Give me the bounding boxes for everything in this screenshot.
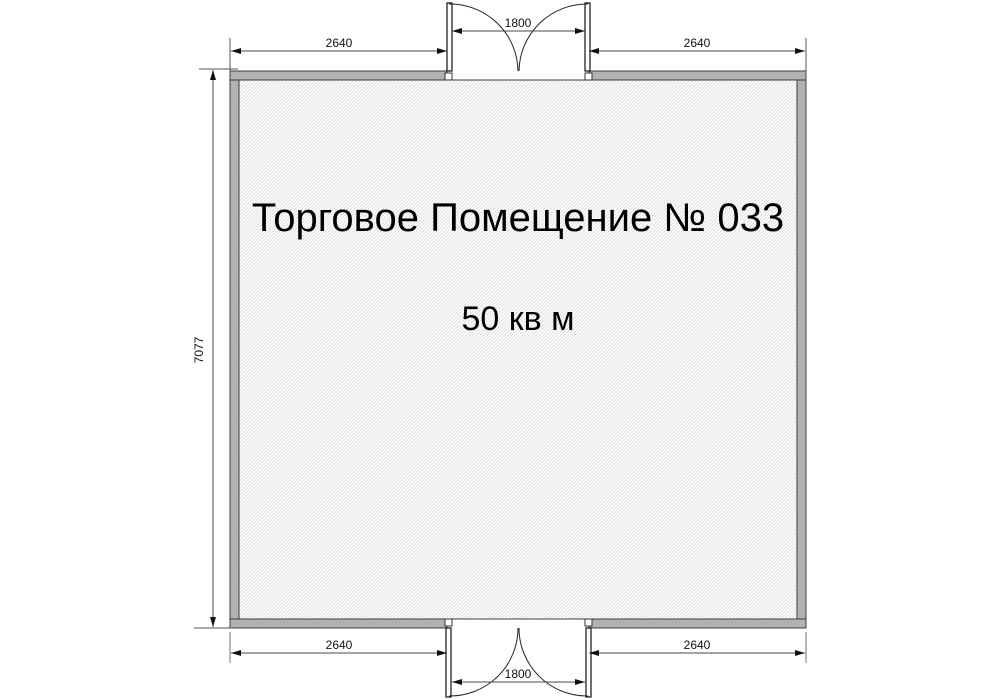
door-top [447,3,590,71]
door-jamb-bottom-left [445,619,452,626]
dim-label-top-door: 1800 [505,16,532,30]
dim-label-bottom-left: 2640 [326,638,353,652]
arrowhead [575,679,585,685]
room-title: Торговое Помещение № 033 [252,196,784,240]
arrowhead [452,679,462,685]
dim-label-top-right: 2640 [684,36,711,50]
door-leaf-top-right [585,3,590,71]
door-swing-arc-bottom-right [519,628,588,696]
door-swing-arc-top-right [519,4,588,71]
floor-plan-page: 2640 2640 1800 2640 2640 1800 7077 Торго… [0,0,1000,700]
door-swing-arc-bottom-left [449,628,518,696]
wall-top-right [589,71,806,80]
door-bottom [446,628,591,697]
dim-label-top-left: 2640 [326,36,353,50]
room-interior [239,80,797,619]
dim-label-bottom-door: 1800 [505,667,532,681]
dim-label-bottom-right: 2640 [684,638,711,652]
arrowhead [437,48,447,54]
door-jamb-top-right [585,73,592,80]
arrowhead [575,28,585,34]
door-leaf-top-left [447,3,452,71]
door-swing-arc-top-left [449,4,518,71]
door-leaf-bottom-left [446,628,451,697]
arrowhead [231,48,241,54]
arrowhead [210,617,216,627]
door-jamb-top-left [445,73,452,80]
door-leaf-bottom-right [586,628,591,697]
arrowhead [231,650,241,656]
wall-right [797,71,806,628]
arrowhead [210,70,216,80]
arrowhead [795,48,805,54]
dim-label-left-height: 7077 [192,336,206,363]
door-jamb-bottom-right [585,619,592,626]
arrowhead [795,650,805,656]
wall-bottom-right [589,619,806,628]
wall-left [230,71,239,628]
arrowhead [452,28,462,34]
room-area: 50 кв м [461,300,574,338]
floor-plan-canvas: 2640 2640 1800 2640 2640 1800 7077 Торго… [0,0,1000,700]
wall-bottom-left [230,619,447,628]
wall-top-left [230,71,447,80]
